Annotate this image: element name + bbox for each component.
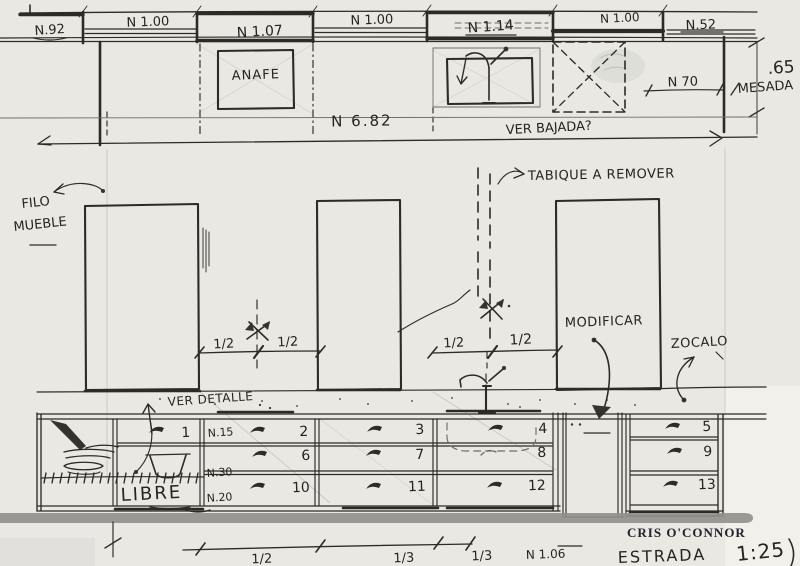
total-dim-label: N 6.82: [331, 111, 393, 130]
filo-mueble-note: FILO MUEBLE: [13, 183, 105, 245]
upper-label-3: N 1.00: [350, 12, 393, 28]
mesada-label: MESADA: [737, 78, 794, 97]
depth-n15: N.15: [207, 425, 234, 440]
drawer-3: 3: [415, 422, 424, 438]
drawer-9: 9: [703, 444, 712, 460]
dimension-half-right: 1/2 1/2: [428, 299, 562, 358]
modificar-label: MODIFICAR: [565, 313, 644, 331]
bottom-dim-4: N 1.06: [526, 547, 566, 562]
drawer-7: 7: [415, 447, 424, 463]
drawer-12: 12: [528, 478, 546, 495]
drawer-4: 4: [538, 421, 548, 437]
depth-n20: N.20: [206, 490, 233, 505]
drawer-6: 6: [301, 448, 311, 464]
anafe-box: ANAFE: [218, 50, 294, 109]
depth-n30: N.30: [206, 465, 233, 480]
mesada-height: .65 MESADA: [731, 38, 795, 134]
sink-bowl-sketch: [146, 454, 190, 478]
drawer-13: 13: [698, 477, 716, 494]
upper-label-n92: N.92: [34, 22, 65, 39]
bottom-dim-3: 1/3: [471, 549, 492, 565]
tabique-label: TABIQUE A REMOVER: [527, 166, 675, 184]
bottom-dim-2: 1/3: [393, 551, 414, 566]
signature-name: ESTRADA: [617, 545, 706, 566]
axis-cross-icon-2: [479, 299, 510, 319]
libre-label: LIBRE: [120, 482, 183, 506]
ver-detalle-note: VER DETALLE: [134, 389, 271, 474]
zocalo-note: ZOCALO: [670, 334, 728, 402]
upper-label-2: N 1.07: [236, 23, 283, 41]
drawer-11: 11: [408, 479, 426, 496]
depth-labels: N.15 N.30 N.20: [206, 425, 234, 505]
stamp-name: CRIS O'CONNOR: [627, 525, 746, 540]
half-label-1: 1/2: [213, 336, 235, 352]
n70-label: N 70: [667, 74, 698, 90]
drawer-10: 10: [292, 480, 310, 497]
drawer-2: 2: [299, 424, 308, 440]
base-cabinets: 1 2 3 4 5 6 7 8 9 10 11 12 13 N.15 N.30 …: [37, 411, 766, 517]
upper-label-4: N 1.14: [467, 17, 514, 36]
filo-line2: MUEBLE: [13, 214, 68, 234]
half-label-3: 1/2: [443, 335, 465, 351]
zocalo-label: ZOCALO: [670, 334, 728, 352]
drawer-5: 5: [702, 419, 711, 435]
tall-unit-middle: [317, 200, 401, 390]
filo-line1: FILO: [21, 194, 51, 212]
upper-label-6: N.52: [685, 17, 716, 33]
upper-label-5: N 1.00: [600, 10, 640, 26]
libre-note: LIBRE: [120, 482, 210, 512]
dimension-total: N 6.82 VER BAJADA?: [0, 111, 757, 146]
bottom-dim-1: 1/2: [251, 552, 272, 566]
modificar-note: MODIFICAR: [565, 313, 644, 419]
ver-bajada-note: VER BAJADA?: [505, 119, 592, 138]
tall-unit-left: [85, 204, 209, 390]
dimension-n70: N 70: [644, 74, 723, 96]
stool-sketch: [50, 420, 118, 474]
dishwasher-marks: [571, 423, 610, 433]
sketch-page: N.92 N 1.00 N 1.07 N 1.00 N 1.14 N 1.00 …: [0, 0, 800, 566]
half-label-2: 1/2: [277, 334, 299, 350]
upper-label-1: N 1.00: [126, 14, 169, 30]
faucet-icon: [457, 47, 508, 103]
drawer-8: 8: [537, 445, 546, 461]
bottom-dimensions: 1/2 1/3 1/3 N 1.06: [105, 522, 582, 566]
scale-label: 1:25: [735, 537, 786, 566]
kitchen-elevation-sketch: N.92 N 1.00 N 1.07 N 1.00 N 1.14 N 1.00 …: [0, 0, 800, 566]
anafe-label: ANAFE: [232, 67, 281, 84]
drawer-1: 1: [181, 425, 190, 441]
dimension-half-left: 1/2 1/2: [195, 300, 325, 368]
half-label-4: 1/2: [509, 331, 532, 348]
height-65: .65: [767, 57, 795, 79]
